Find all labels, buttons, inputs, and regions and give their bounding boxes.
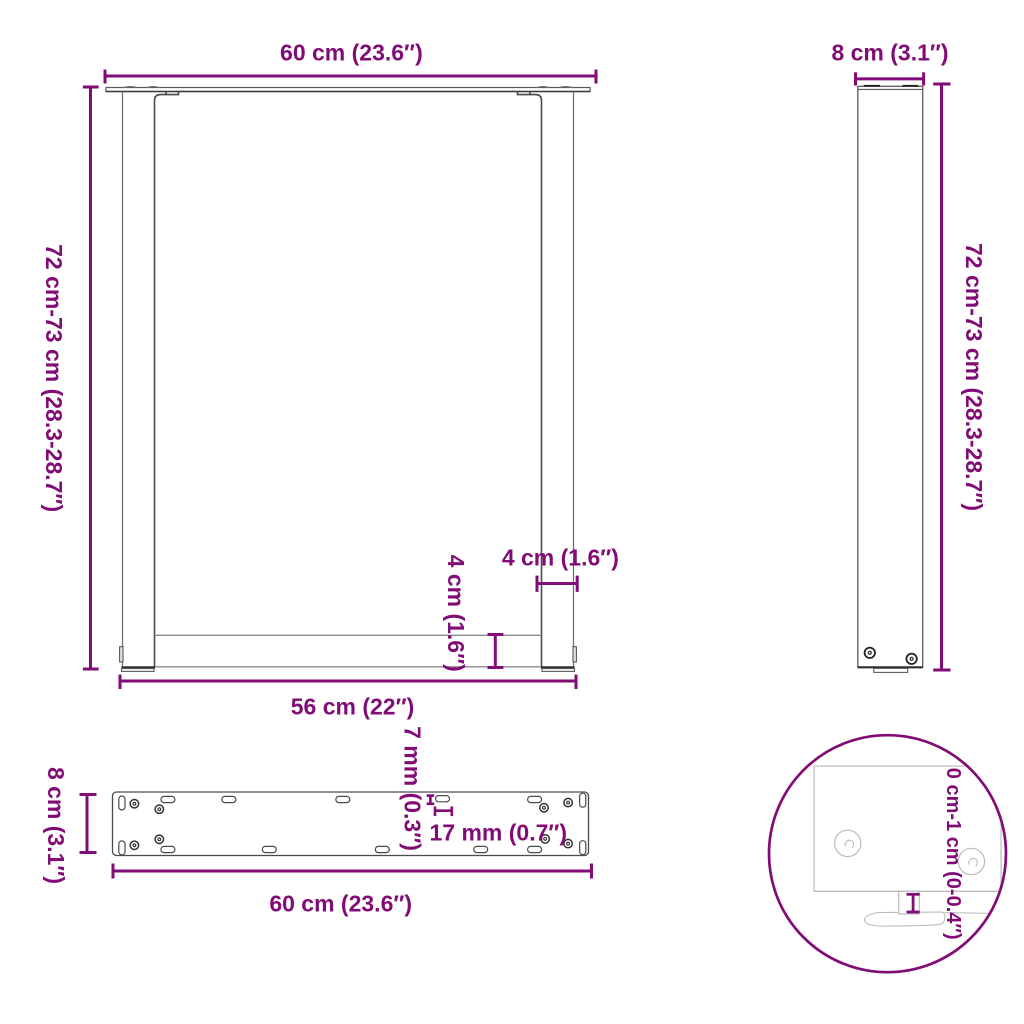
svg-text:8 cm (3.1″): 8 cm (3.1″): [831, 40, 948, 66]
svg-text:7 mm (0.3″): 7 mm (0.3″): [399, 726, 425, 851]
svg-text:56 cm (22″): 56 cm (22″): [291, 694, 415, 720]
svg-text:4 cm (1.6″): 4 cm (1.6″): [443, 555, 469, 672]
svg-text:72 cm-73 cm (28.3-28.7″): 72 cm-73 cm (28.3-28.7″): [961, 243, 987, 511]
svg-text:60 cm (23.6″): 60 cm (23.6″): [269, 890, 412, 916]
svg-text:60 cm (23.6″): 60 cm (23.6″): [280, 40, 423, 66]
svg-text:4 cm (1.6″): 4 cm (1.6″): [502, 545, 619, 571]
svg-text:0 cm-1 cm (0-0.4″): 0 cm-1 cm (0-0.4″): [942, 768, 964, 940]
svg-text:72 cm-73 cm (28.3-28.7″): 72 cm-73 cm (28.3-28.7″): [41, 244, 67, 512]
svg-text:17 mm (0.7″): 17 mm (0.7″): [430, 820, 568, 846]
svg-text:8 cm (3.1″): 8 cm (3.1″): [43, 767, 69, 884]
